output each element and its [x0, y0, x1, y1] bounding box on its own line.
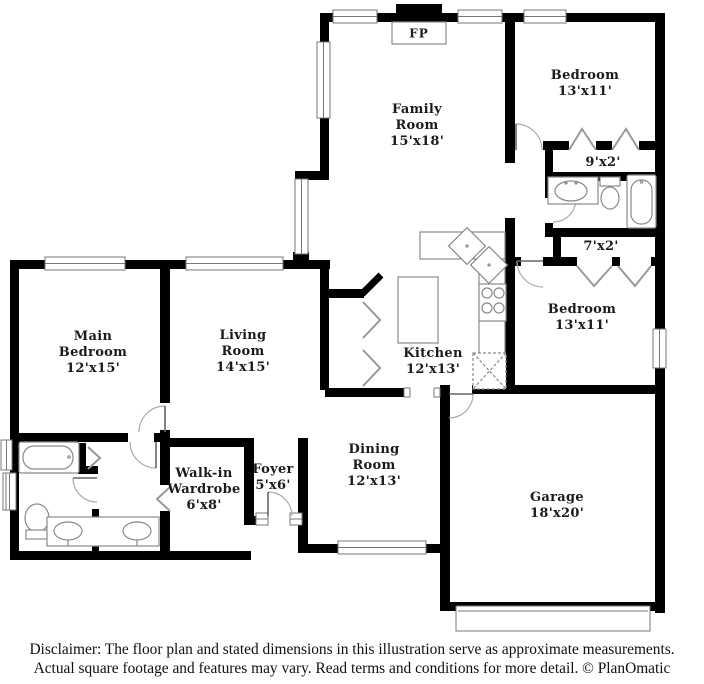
door-arc-icon — [73, 478, 97, 502]
sink-icon — [548, 177, 598, 204]
toilet-icon — [25, 504, 49, 539]
window-icon — [333, 10, 377, 23]
fixtures — [19, 22, 656, 546]
bifold-door-icon — [569, 129, 596, 150]
toilet-icon — [600, 177, 620, 209]
window-icon — [1, 440, 12, 470]
door-arc-icon — [268, 492, 292, 516]
disclaimer-line-1: Disclaimer: The floor plan and stated di… — [0, 641, 704, 659]
bifold-door-icon — [363, 350, 380, 386]
stove-icon — [479, 284, 506, 321]
window-icon — [45, 257, 125, 270]
window-icon — [458, 10, 502, 23]
fireplace-box — [392, 22, 446, 44]
window-icon — [317, 42, 330, 118]
door-arc-icon — [449, 394, 473, 418]
door-arc-icon — [139, 406, 165, 432]
bathtub-icon — [627, 175, 656, 228]
window-icon — [653, 329, 666, 368]
bifold-door-icon — [577, 266, 612, 286]
kitchen-island-icon — [398, 277, 438, 343]
bifold-door-icon — [612, 129, 639, 150]
bathtub-icon — [19, 442, 79, 473]
window-icon — [295, 179, 308, 254]
door-arc-icon — [516, 124, 542, 150]
window-icon — [3, 473, 16, 510]
bifold-door-icon — [618, 266, 651, 286]
window-icon — [338, 541, 426, 554]
refrigerator-icon — [473, 353, 506, 389]
disclaimer-line-2: Actual square footage and features may v… — [0, 660, 704, 678]
door-post — [404, 388, 440, 397]
floorplan: Family Room 15'x18' Bedroom 13'x11' 9'x2… — [0, 0, 704, 684]
bifold-door-icon — [157, 487, 170, 511]
fireplace-icon — [396, 4, 442, 14]
bifold-door-icon — [88, 447, 100, 469]
window-icon — [186, 257, 283, 270]
angled-wall — [362, 275, 381, 294]
sidelight-window-icon — [256, 513, 268, 525]
door-arc-icon — [130, 442, 156, 468]
floorplan-drawing — [0, 0, 704, 684]
garage-door-icon — [456, 606, 650, 631]
double-sink-icon — [47, 517, 159, 546]
window-icon — [524, 10, 566, 23]
bifold-door-icon — [363, 302, 380, 338]
